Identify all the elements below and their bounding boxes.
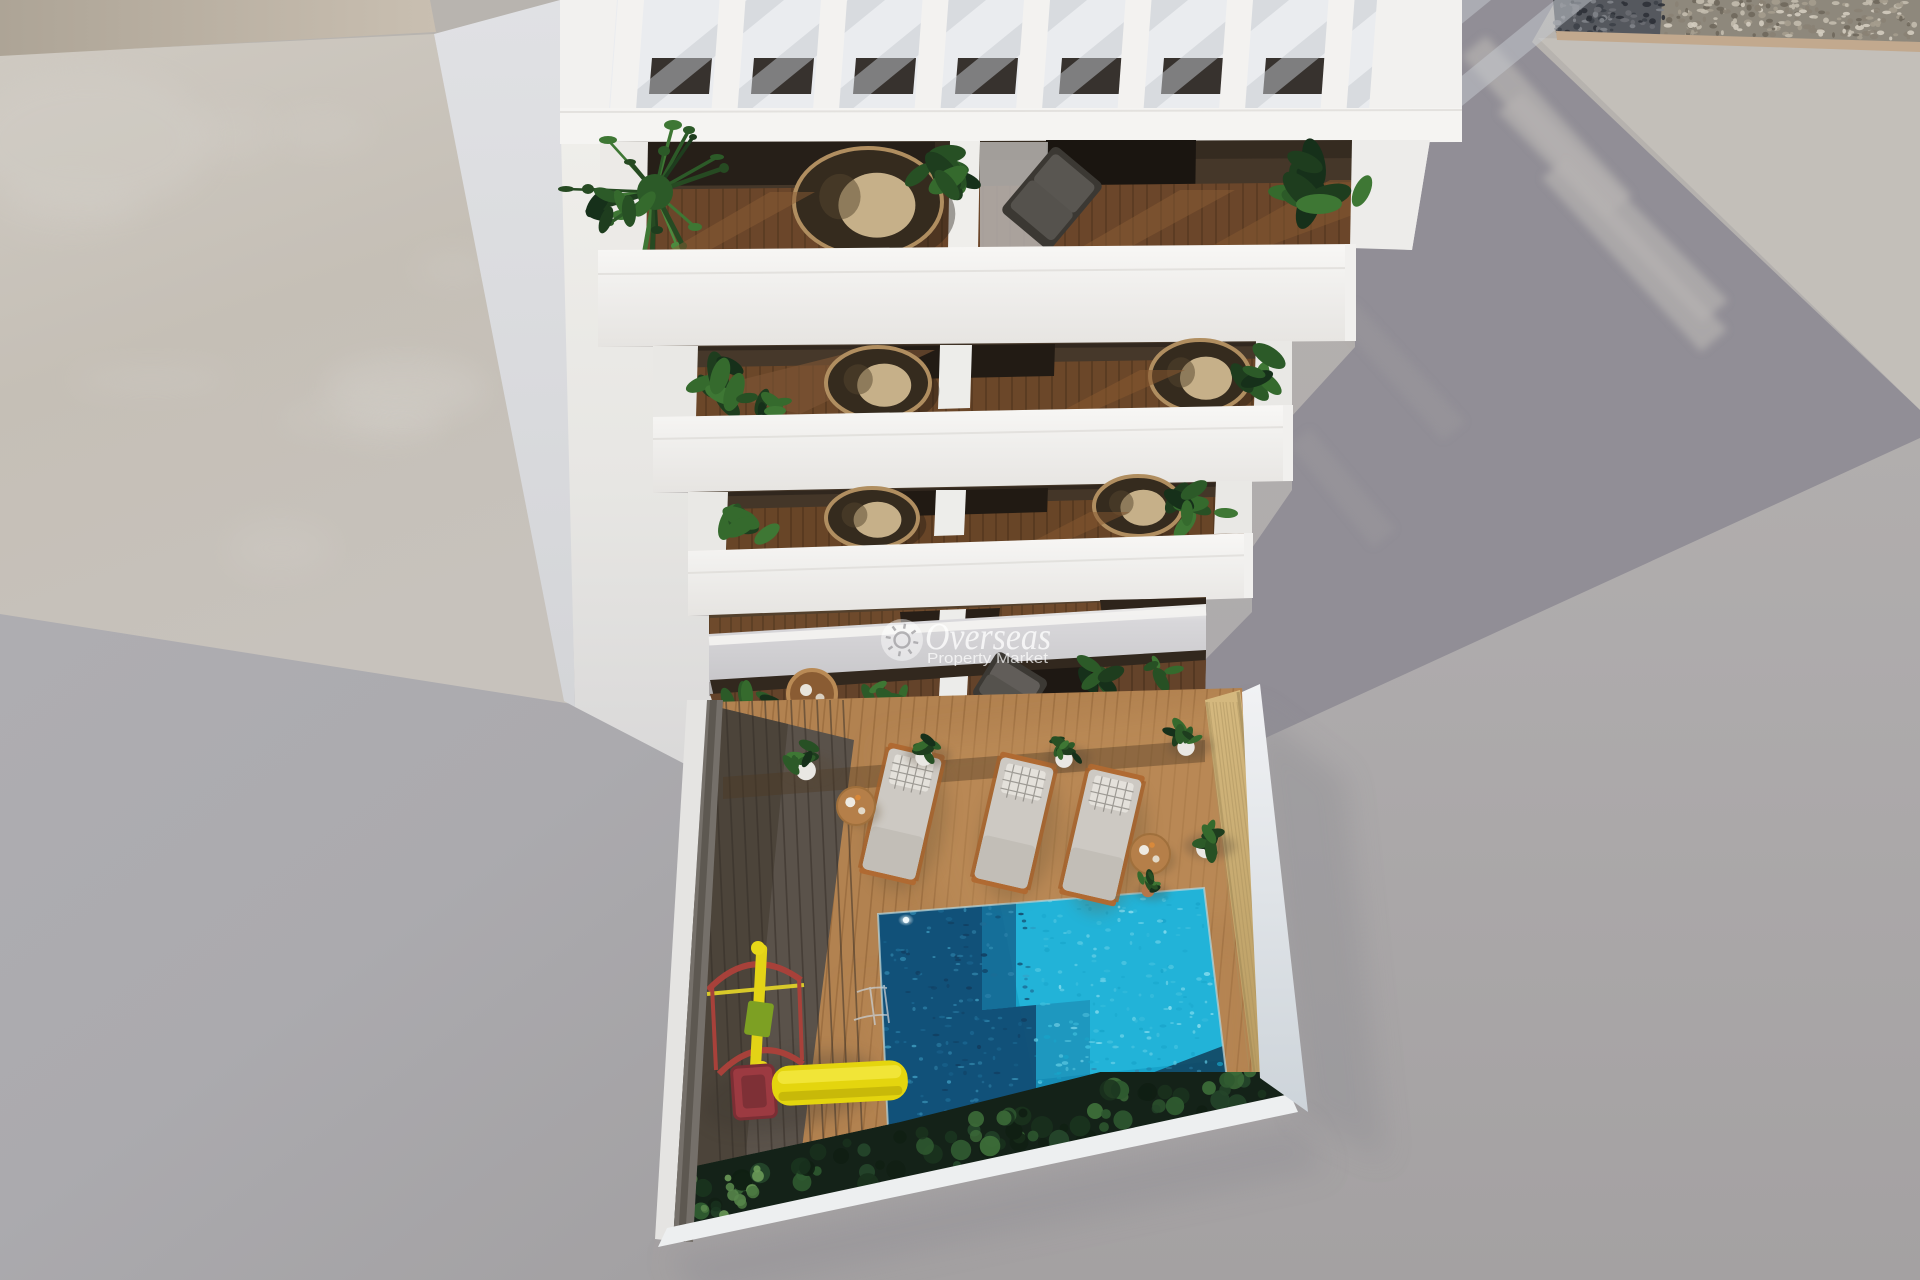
svg-text:Property Market: Property Market <box>927 651 1048 667</box>
